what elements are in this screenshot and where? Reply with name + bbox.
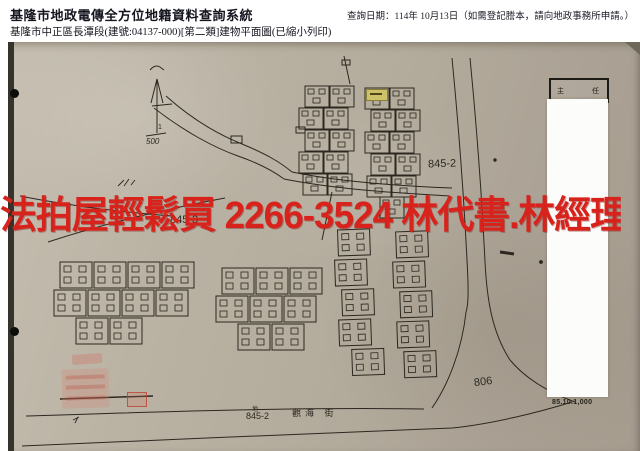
signature-box-right-char: 任: [592, 86, 599, 96]
street-label-guanhai: 觀海 街: [292, 406, 338, 419]
signature-box-left-char: 主: [557, 86, 564, 96]
building-cluster-middle: [216, 268, 322, 350]
parcel-label-806: 806: [473, 375, 493, 389]
building-cluster-right: [334, 227, 437, 380]
red-stamp-box: [127, 392, 147, 407]
scale-numerator: 1: [158, 124, 162, 131]
yellow-sticker-tag: [366, 89, 388, 101]
red-stamp-small: [72, 353, 103, 365]
parcel-label-845-2-bottom: 845-2: [246, 411, 269, 421]
redaction-strip: [547, 99, 608, 397]
building-cluster-left: [54, 262, 194, 344]
print-code: 85.10.1,000: [552, 399, 592, 406]
scale-denominator: 500: [146, 137, 159, 146]
parcel-label-845-2-mid: 845-2: [428, 158, 457, 171]
red-stamp-main: [61, 368, 109, 409]
advertisement-watermark: 法拍屋輕鬆買 2266-3524 林代書.林經理: [0, 193, 621, 240]
